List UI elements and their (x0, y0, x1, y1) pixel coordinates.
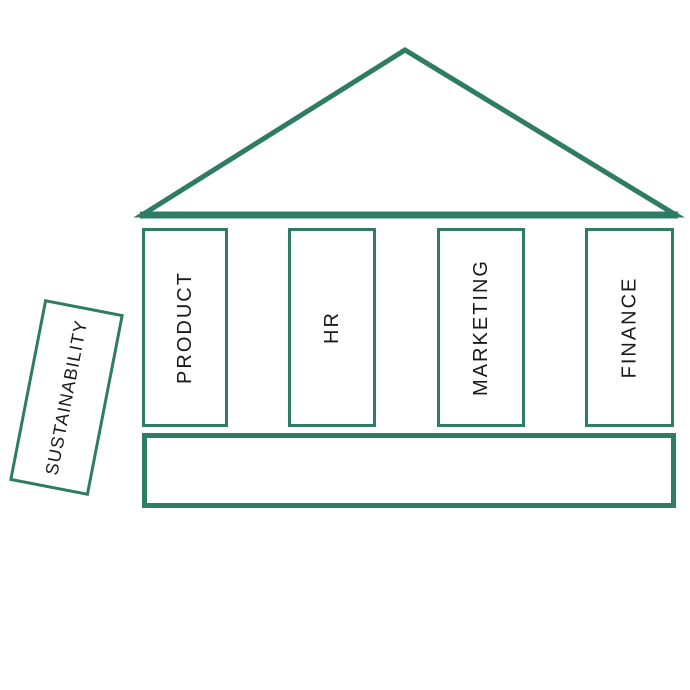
pillar-hr: HR (288, 228, 376, 427)
pillar-product-label: PRODUCT (174, 271, 197, 384)
pillar-marketing: MARKETING (437, 228, 525, 427)
sustainability-label: SUSTAINABILITY (41, 318, 92, 477)
pillar-hr-label: HR (320, 311, 343, 344)
pillar-finance-label: FINANCE (618, 277, 641, 379)
roof-triangle-icon (142, 50, 676, 215)
house-diagram: PRODUCT HR MARKETING FINANCE SUSTAINABIL… (0, 0, 690, 690)
pillar-finance: FINANCE (585, 228, 674, 427)
foundation-bar (142, 433, 676, 508)
pillar-marketing-label: MARKETING (470, 259, 493, 396)
pillar-product: PRODUCT (142, 228, 228, 427)
